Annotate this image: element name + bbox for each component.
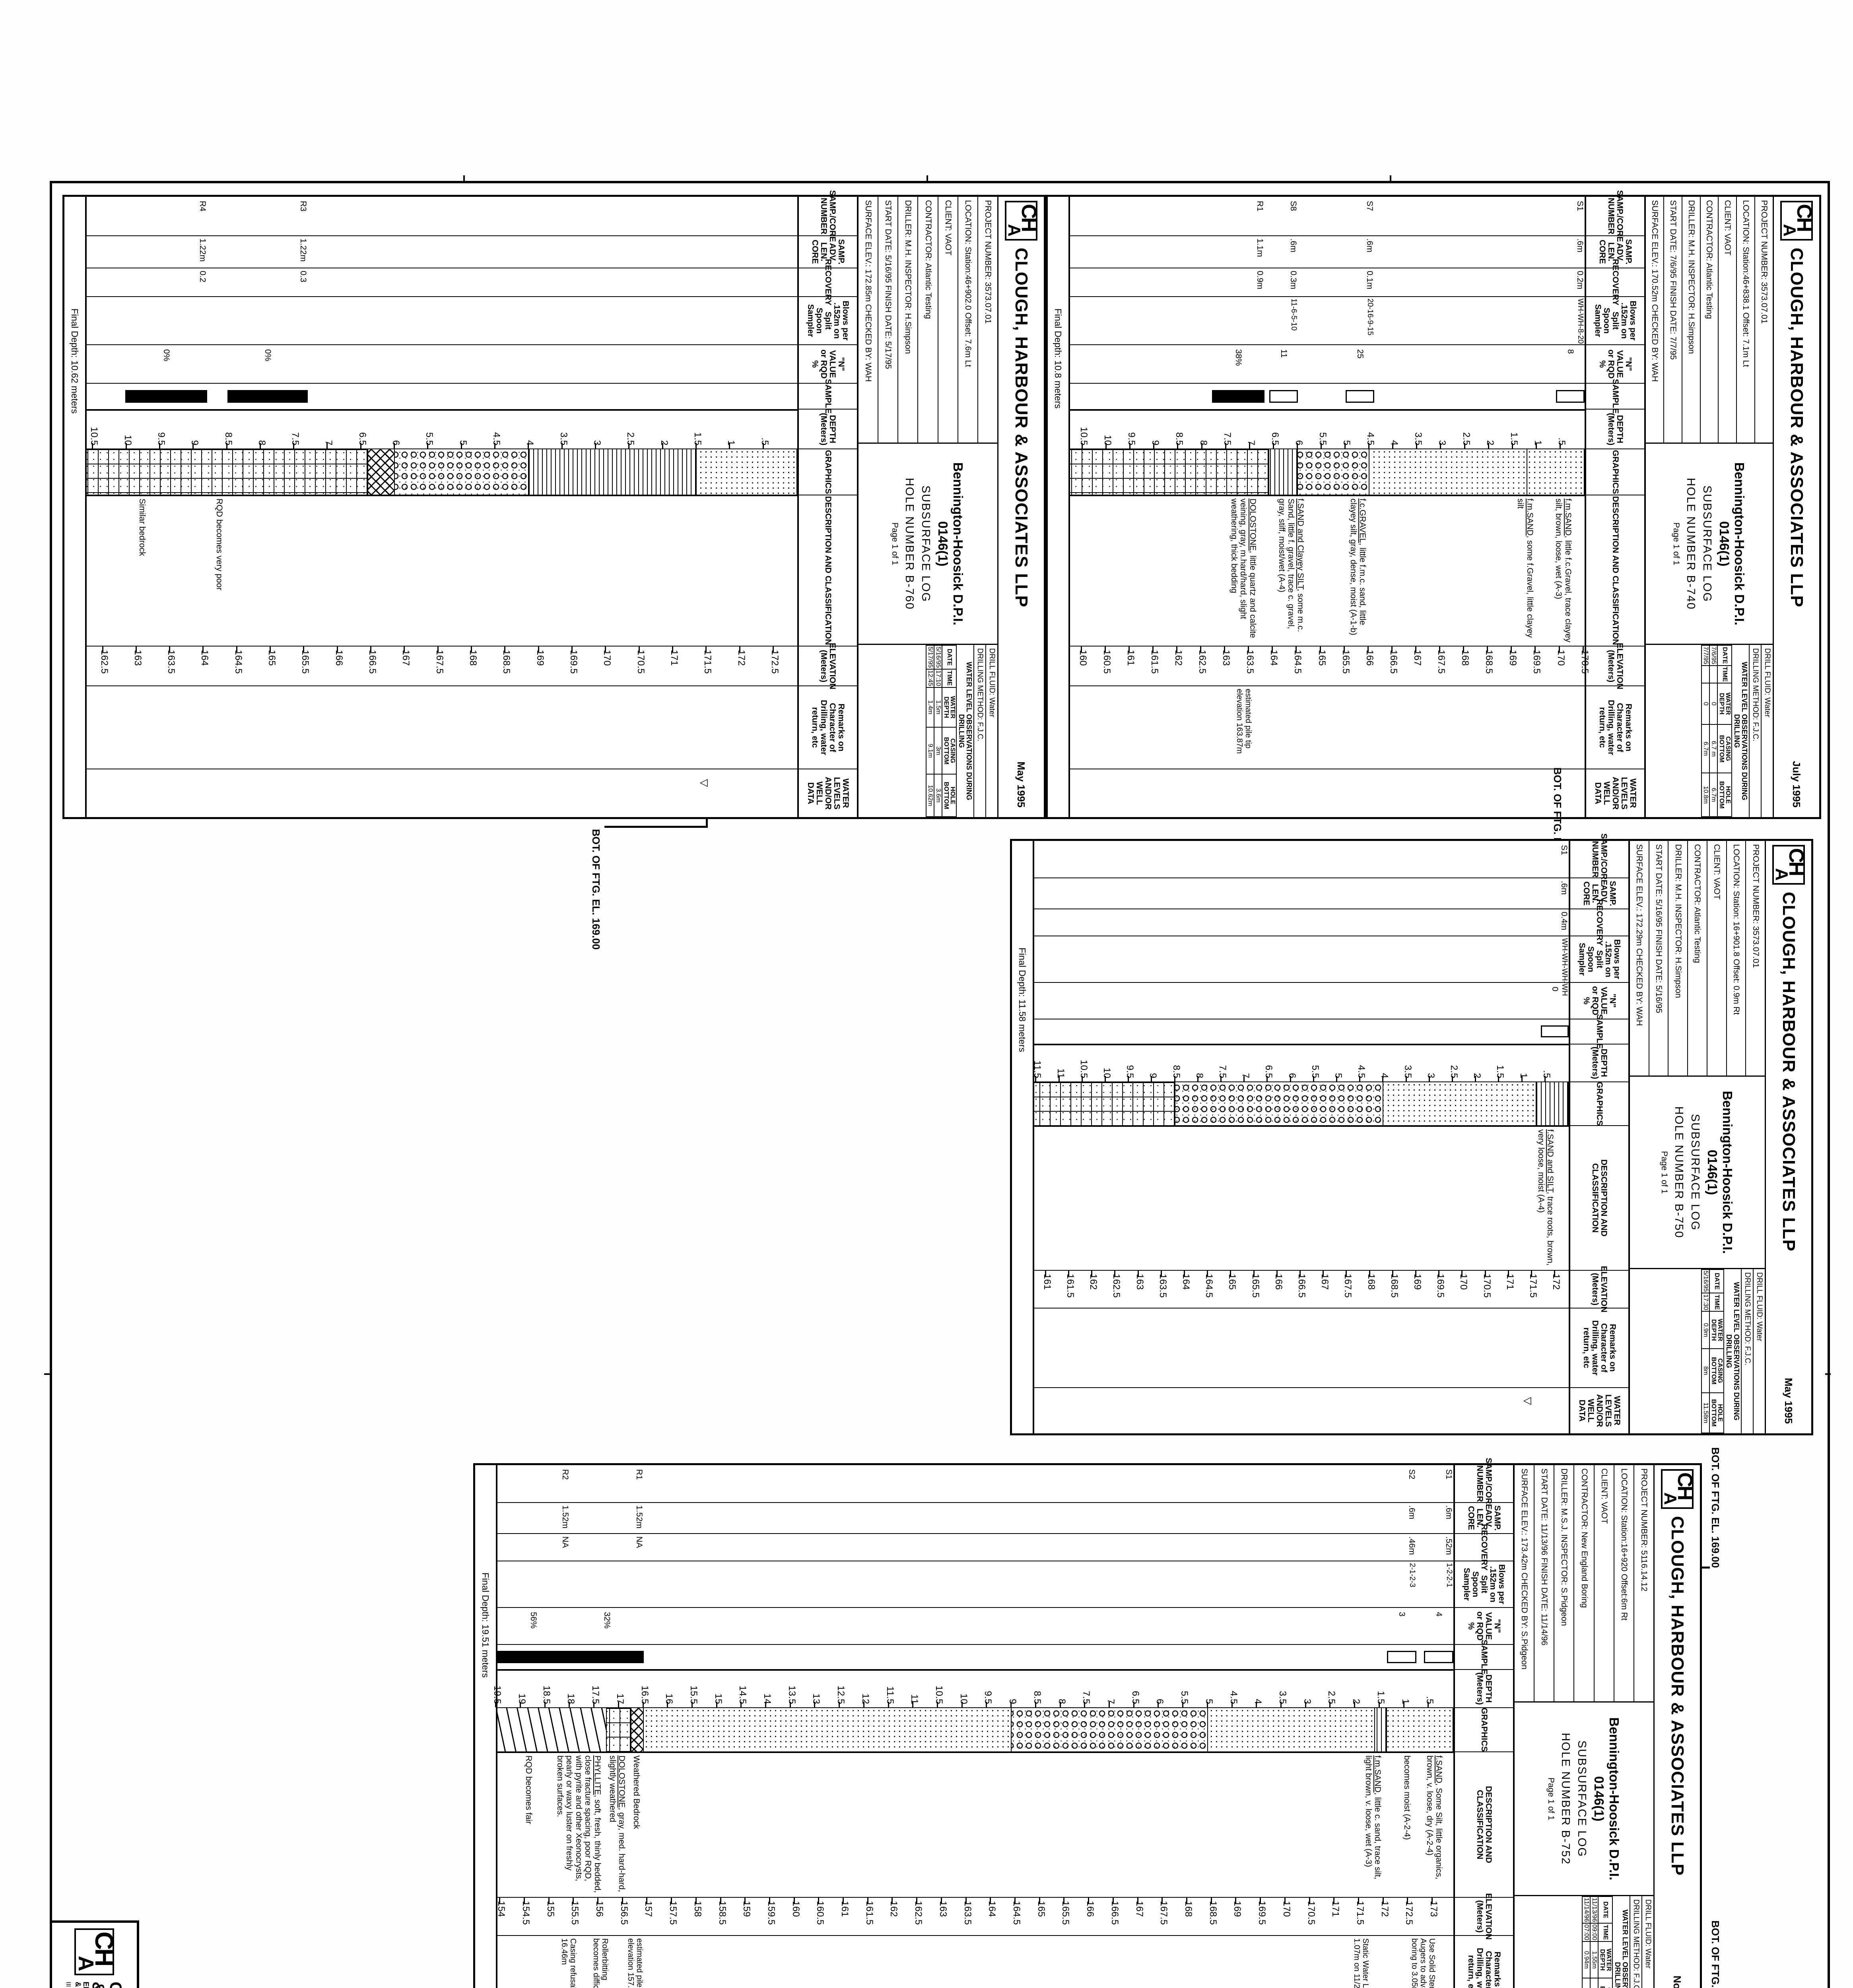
sample-recovery: 0.1m [1365,271,1374,289]
cha-services-line2: & LANDSCAPE ARCHITECTS [74,1982,82,1988]
body-column-samp [87,383,797,409]
elevation-label: 167 [400,650,411,666]
column-header-samp: SAMPLE [1570,1019,1628,1044]
location-row: LOCATION: Station: 16+901.8 Offset: 0.9m… [1726,841,1746,1076]
elevation-label: 164.5 [233,650,244,674]
graphics-layer-brick [1033,1082,1175,1125]
cha-logo: CH A [75,1928,115,1975]
project-number-row: PROJECT NUMBER: 3573.07.01 [977,197,997,443]
depth-label: 4.5 [1228,1691,1239,1704]
depth-tick [569,1702,570,1707]
depth-label: 14 [761,1693,773,1704]
elevation-tick [1369,1271,1370,1276]
project-number-row: PROJECT NUMBER: 3573.07.01 [1754,197,1773,443]
depth-label: 19.5 [491,1685,503,1704]
company-name: CLOUGH, HARBOUR & ASSOCIATES LLP [1011,248,1031,608]
elevation-tick [739,646,740,652]
elevation-label: 172.5 [1403,1901,1414,1925]
drill-fluid: DRILL FLUID: Water [1761,645,1773,817]
depth-label: 9.5 [1124,1065,1135,1078]
elevation-tick [1531,1271,1532,1276]
depth-label: 3 [1425,1073,1436,1078]
bot-ftg-leader [604,826,708,828]
depth-tick [1082,1076,1083,1081]
water-obs-row: 7/6/9506.7 m6.7m [1709,645,1717,817]
sample-advance: 1.1m [1255,239,1264,257]
depth-label: 16 [663,1693,674,1704]
depth-label: 11.5 [1031,1060,1043,1078]
elevation-label: 169.5 [568,650,579,674]
depth-tick [765,1702,766,1707]
body-column-rec: 0.30.2 [87,268,797,296]
sample-recovery: 0.9m [1255,271,1264,289]
sample-n-value: 4 [1434,1612,1443,1617]
sample-advance: .6m [1365,239,1374,252]
depth-label: 4 [1252,1699,1263,1704]
body-column-water [1070,769,1585,817]
depth-label: 1.5 [692,432,703,445]
depth-tick [1428,1702,1429,1707]
elevation-tick [1088,1898,1089,1903]
depth-label: 14.5 [737,1685,748,1704]
log-body: S1.6m0.4mWH-WH-WH-WH0.511.522.533.544.55… [1034,841,1569,1433]
elevation-label: 157.5 [667,1901,678,1925]
water-obs-header-row: DATETIMEWATER DEPTHCASING BOTTOMHOLE BOT… [1717,645,1732,817]
depth-label: 8 [1056,1699,1067,1704]
sample-bar [1556,390,1585,403]
soil-description: DOLOSTONE, gray, med. hard-hard, slightl… [608,1755,626,1895]
elevation-label: 170 [1458,1274,1469,1290]
depth-label: 8.5 [1031,1691,1043,1704]
elevation-tick [1113,1898,1114,1903]
depth-tick [1544,1076,1546,1081]
elevation-tick [705,646,707,652]
elevation-label: 166.5 [1388,650,1399,674]
depth-tick [1488,443,1489,448]
depth-tick [1109,1702,1110,1707]
drilling-method: DRILLING METHOD: F.J.C. [1741,1269,1753,1433]
sample-advance: .6m [1444,1505,1453,1519]
depth-tick [695,443,697,448]
depth-tick [394,443,395,448]
sample-advance: .6m [1288,239,1298,252]
body-column-blows: WH-WH-WH-WH [1034,936,1569,982]
water-obs-cell: 5/17/95 [926,645,934,669]
drawing-sheet: CHACLOUGH, HARBOUR & ASSOCIATES LLPMay 1… [0,0,1853,1988]
water-obs-cell: 0.9m [1701,1311,1709,1349]
sample-n-value: 8 [1566,349,1575,354]
water-obs-header: TIME [942,669,956,687]
depth-tick [1082,443,1083,448]
elevation-label: 163.5 [1157,1274,1168,1298]
final-depth-row: Final Depth: 10.8 meters [1048,197,1070,817]
depth-label: 10 [1102,435,1113,446]
bot-of-footing-annotation: BOT. OF FTG. EL. 169.00 [1708,1920,1721,1988]
depth-label: 16.5 [639,1685,650,1704]
water-obs-cell: 0 [1709,683,1717,724]
depth-tick [293,443,294,448]
depth-label: .5 [1556,437,1567,445]
column-header-water: WATER LEVELS AND/OR WELL DATA [1586,769,1644,817]
elevation-tick [1323,1271,1324,1276]
elevation-label: 165 [1316,650,1327,666]
graphics-layer-gravel [1175,1082,1384,1125]
depth-tick [1266,1076,1268,1081]
elevation-tick [1161,1271,1162,1276]
sample-bar [125,390,207,403]
depth-tick [1429,1076,1430,1081]
depth-tick [1133,1702,1134,1707]
elevation-label: 169 [534,650,546,666]
elevation-tick [1272,646,1273,652]
depth-label: 3 [1301,1699,1313,1704]
depth-tick [1207,1702,1208,1707]
elevation-tick [1554,1271,1555,1276]
elevation-tick [1253,1271,1255,1276]
boring-log-hole-number-b-752: CHACLOUGH, HARBOUR & ASSOCIATES LLPNovem… [473,1463,1702,1988]
depth-tick [544,1702,546,1707]
depth-tick [1344,443,1346,448]
elevation-label: 158.5 [717,1901,728,1925]
surface-elev-row: SURFACE ELEV.: 172.85m CHECKED BY: WAH [859,197,878,443]
elevation-label: 165 [1035,1901,1047,1917]
depth-tick [1290,1076,1291,1081]
depth-tick [1035,1702,1036,1707]
soil-description: becomes moist (A-2-4) [1402,1755,1412,1895]
drill-fluid: DRILL FLUID: Water [985,645,997,817]
body-column-depth: .511.522.533.544.555.566.577.588.599.510… [1070,409,1585,449]
depth-tick [520,1702,521,1707]
elevation-tick [1439,646,1440,652]
sample-number: R3 [298,201,308,212]
elevation-tick [1045,1271,1046,1276]
water-obs-cell: 3.6m [934,774,942,817]
elevation-label: 155 [545,1901,556,1917]
depth-label: 12.5 [835,1685,846,1704]
dates-row: START DATE: 11/13/96 FINISH DATE: 11/14/… [1534,1465,1554,1701]
depth-tick [839,1702,840,1707]
elevation-tick [1063,1898,1064,1903]
water-obs-cell: 6.7m [1709,773,1717,817]
graphics-layer-gravel [1012,1708,1208,1751]
sample-recovery: NA [634,1536,644,1548]
graphics-layer-chevron [368,449,395,494]
depth-label: 9.5 [982,1691,993,1704]
body-column-samp [1034,1019,1569,1044]
depth-tick [667,1702,668,1707]
elevation-tick [1211,1898,1212,1903]
column-header-samp: SAMPLE [799,383,857,409]
water-obs-cell: 10.62m [926,774,934,817]
water-obs-cell: 10.8m [1701,773,1709,817]
body-column-depth: .511.522.533.544.555.566.577.588.599.510… [497,1669,1453,1707]
elevation-tick [1461,1271,1463,1276]
sample-n-value: 11 [1279,349,1288,358]
elevation-label: 165.5 [1340,650,1351,674]
body-column-water: ▽ [1034,1387,1569,1433]
elevation-tick [1068,1271,1069,1276]
elevation-label: 171.5 [702,650,713,674]
body-column-elev: 170.5170169.5169168.5168167.5167166.5166… [1070,646,1585,685]
sample-number: R4 [198,201,207,212]
dates-row: START DATE: 5/16/95 FINISH DATE: 5/16/95 [1649,841,1668,1076]
graphics-layer-dots [697,449,797,494]
elevation-label: 172 [1550,1274,1562,1290]
body-column-samp [1070,383,1585,409]
elevation-label: 163.5 [165,650,177,674]
elevation-tick [1508,1271,1509,1276]
column-header-blows: Blows per .152m on Split Spoon Sampler [1570,936,1628,982]
elevation-tick [720,1898,721,1903]
sample-n-value: 32% [602,1612,612,1629]
soil-description: f.m.SAND, little f.c.Gravel, trace claye… [1554,499,1573,644]
cha-company-line1: CLOUGH, HARBOUR [107,1982,124,1988]
depth-label: 6.5 [357,432,368,445]
depth-tick [1336,1076,1337,1081]
elevation-tick [270,646,271,652]
elevation-tick [1235,1898,1236,1903]
log-title-box: Bennington-Hoosick D.P.I. 0146(1)SUBSURF… [1515,1703,1653,1896]
depth-label: 13 [811,1693,822,1704]
water-level-symbol: ▽ [1522,1397,1534,1405]
log-body: R3R41.22m1.22m0.30.20%0%.511.522.533.544… [87,197,797,817]
depth-label: 6.5 [1269,432,1280,445]
column-header-elev: ELEVATION (Meters) [1455,1897,1513,1935]
elevation-label: 164 [986,1901,997,1917]
sample-advance: .6m [1407,1505,1416,1519]
sample-number: S1 [1559,845,1569,855]
water-obs-cell: 17:10 [934,669,942,687]
depth-tick [1452,1076,1453,1081]
fold-tick [44,1373,50,1375]
elevation-tick [1184,1271,1185,1276]
elevation-label: 173 [1428,1901,1439,1917]
project-number-row: PROJECT NUMBER: 5116.14.12 [1634,1465,1653,1701]
elevation-tick [1081,646,1082,652]
depth-tick [1059,1076,1060,1081]
elevation-tick [695,1898,697,1903]
soil-name: f.m.SAND [1373,1755,1382,1792]
log-header: CHACLOUGH, HARBOUR & ASSOCIATES LLPJuly … [1644,197,1819,817]
hole-number: HOLE NUMBER B-760 [903,445,916,642]
elevation-tick [1230,1271,1231,1276]
sample-advance: .6m [1559,881,1569,895]
depth-label: 10 [122,435,133,446]
depth-tick [226,443,227,448]
depth-tick [1416,443,1417,448]
depth-label: 7.5 [1080,1691,1092,1704]
depth-tick [159,443,160,448]
depth-label: .5 [1424,1696,1435,1704]
sample-bar [227,390,308,403]
body-column-num: S1 [1034,841,1569,878]
water-obs-cell: 8m [1701,1349,1709,1393]
depth-label: 18 [565,1693,576,1704]
cha-text: CLOUGH, HARBOUR & ASSOCIATES LLP ENGINEE… [64,1982,124,1988]
elevation-tick [236,646,237,652]
elevation-label: 159.5 [765,1901,777,1925]
depth-label: 2.5 [1461,432,1472,445]
elevation-label: 171.5 [1354,1901,1365,1925]
depth-tick [1536,443,1537,448]
body-column-elev: 173172.5172171.5171170.5170169.5169168.5… [497,1897,1453,1935]
depth-label: 10.5 [1078,427,1089,446]
elevation-label: 168.5 [1483,650,1494,674]
log-title-line: Bennington-Hoosick D.P.I. 0146(1) [1705,1078,1735,1266]
water-obs-cell: 11/14/96 [1582,1897,1590,1923]
elevation-tick [1383,1898,1384,1903]
depth-tick [495,1702,496,1707]
elevation-tick [1296,646,1297,652]
log-title-box: Bennington-Hoosick D.P.I. 0146(1)SUBSURF… [1646,444,1773,645]
log-date: July 1995 [1791,761,1803,813]
elevation-tick [1392,1271,1393,1276]
log-column-headers: SAMP./CORE NUMBERSAMP. ADV LEN. CORERECO… [797,197,857,817]
sample-n-value: 56% [528,1612,538,1629]
soil-name: DOLOSTONE [1248,499,1257,551]
elevation-tick [1299,1271,1301,1276]
depth-label: 7.5 [1222,432,1233,445]
elevation-tick [303,646,304,652]
elevation-label: 172 [736,650,747,666]
depth-label: 3 [591,440,602,445]
water-obs-cell: 11/13/96 [1590,1897,1598,1923]
depth-tick [888,1702,889,1707]
column-header-graph: GRAPHICS [1586,448,1644,494]
depth-tick [494,443,495,448]
graphics-layer-wavy [496,1708,607,1751]
elevation-label: 161 [839,1901,850,1917]
elevation-tick [672,646,673,652]
depth-label: 5 [1332,1073,1344,1078]
sample-number: S7 [1365,201,1374,211]
water-obs-row: 5/16/9517:300.9m8m11.58m [1701,1270,1709,1433]
depth-label: 12 [860,1693,871,1704]
elevation-tick [203,646,204,652]
elevation-label: 168.5 [1389,1274,1400,1298]
drilling-remark: Use Solid Stem Augers to advance boring … [1410,1938,1436,1988]
depth-label: 9 [189,440,200,445]
drilling-remark: estimated pile tip elevation 163.87m [1235,689,1253,767]
elevation-tick [1511,646,1512,652]
location-row: LOCATION: Station:46+838.1 Offset: 7.1m … [1736,197,1754,443]
sample-advance: .6m [1575,239,1585,252]
log-header-company-row: CHACLOUGH, HARBOUR & ASSOCIATES LLPMay 1… [1765,841,1811,1433]
final-depth-row: Final Depth: 10.62 meters [64,197,87,817]
elevation-label: 158 [692,1901,703,1917]
drilling-method: DRILLING METHOD: F.J.C. [973,645,985,817]
sample-bar [1424,1651,1453,1663]
elevation-label: 170.5 [635,650,646,674]
body-column-num: S1S7S8R1 [1070,197,1585,235]
depth-label: 2.5 [625,432,636,445]
water-obs-header: CASING BOTTOM [1709,1349,1724,1393]
elevation-label: 160 [1077,650,1088,666]
elevation-tick [1248,646,1249,652]
fold-tick [926,175,928,181]
elevation-tick [524,1898,525,1903]
column-header-depth: DEPTH (Meters) [1455,1669,1513,1707]
elevation-label: 167.5 [1435,650,1447,674]
elevation-label: 163 [1220,650,1231,666]
depth-tick [1392,443,1393,448]
depth-tick [643,1702,644,1707]
body-column-desc: f.SAND and SILT, trace roots, brown, ver… [1034,1125,1569,1270]
page-label: Page 1 of 1 [890,445,900,642]
depth-tick [1379,1702,1380,1707]
depth-tick [92,443,93,448]
body-column-n: 0 [1034,982,1569,1019]
elevation-tick [1463,646,1464,652]
depth-label: 8.5 [1173,432,1185,445]
log-header-company-row: CHACLOUGH, HARBOUR & ASSOCIATES LLPNovem… [1653,1465,1700,1988]
depth-tick [1368,443,1369,448]
body-column-samp [497,1644,1453,1669]
elevation-label: 168.5 [501,650,512,674]
elevation-label: 170.5 [1579,650,1590,674]
sample-recovery: 0.3m [1288,271,1298,289]
depth-tick [863,1702,864,1707]
soil-description: f.SAND, Some Silt, little organics, brow… [1425,1755,1443,1895]
log-header: CHACLOUGH, HARBOUR & ASSOCIATES LLPMay 1… [1628,841,1811,1433]
depth-tick [986,1702,987,1707]
depth-tick [1035,1076,1036,1081]
elevation-label: 165.5 [1060,1901,1071,1925]
driller-row: DRILLER: M.H. INSPECTOR: H.Simpson [1682,197,1700,443]
elevation-tick [1358,1898,1359,1903]
log-header-detail-row: PROJECT NUMBER: 3573.07.01LOCATION: Stat… [1630,841,1765,1433]
depth-tick [1521,1076,1523,1081]
water-obs-row: 11/13/9609:001.55mNone3.05m [1590,1897,1598,1988]
sample-recovery: 0.4m [1559,912,1569,930]
elevation-tick [1105,646,1106,652]
company-name: CLOUGH, HARBOUR & ASSOCIATES LLP [1667,1516,1687,1876]
depth-label: 1 [1532,440,1543,445]
final-depth-row: Final Depth: 19.51 meters [475,1465,497,1988]
depth-tick [716,1702,717,1707]
depth-tick [593,1702,594,1707]
water-obs-row: 11/14/9607:000.94m16.46m16.46m [1582,1897,1590,1988]
log-body: S1S2R1R2.6m.6m1.52m1.52m.52m.46mNANA1-2-… [497,1465,1453,1988]
elevation-tick [1207,1271,1208,1276]
column-header-depth: DEPTH (Meters) [1586,409,1644,448]
depth-tick [1220,1076,1222,1081]
depth-label: 13.5 [786,1685,797,1704]
elevation-tick [867,1898,868,1903]
elevation-label: 171.5 [1527,1274,1538,1298]
depth-tick [461,443,462,448]
column-header-elev: ELEVATION (Meters) [1570,1270,1628,1308]
depth-label: 5.5 [1317,432,1328,445]
company-name: CLOUGH, HARBOUR & ASSOCIATES LLP [1779,892,1799,1252]
column-header-num: SAMP./CORE NUMBER [1586,197,1644,235]
graphics-layer-gravel [1298,449,1369,494]
sample-bar [1212,390,1264,403]
depth-label: .5 [759,437,770,445]
drilling-remark: Static Water Level: 1.07m on 11/25/96 [1352,1938,1370,1988]
depth-tick [1305,1702,1306,1707]
elevation-tick [639,646,640,652]
depth-tick [561,443,563,448]
driller-row: DRILLER: M.H. INSPECTOR: H.Simpson [897,197,917,443]
client-row: CLIENT: VAOT [1707,841,1726,1076]
elevation-label: 170.5 [1305,1901,1317,1925]
soil-description: RQD becomes very poor [215,499,224,644]
depth-tick [327,443,328,448]
log-header: CHACLOUGH, HARBOUR & ASSOCIATES LLPNovem… [1513,1465,1700,1988]
water-obs-header: TIME [1709,1293,1724,1311]
water-obs-header-row: DATETIMEWATER DEPTHCASING BOTTOMHOLE BOT… [942,645,956,817]
